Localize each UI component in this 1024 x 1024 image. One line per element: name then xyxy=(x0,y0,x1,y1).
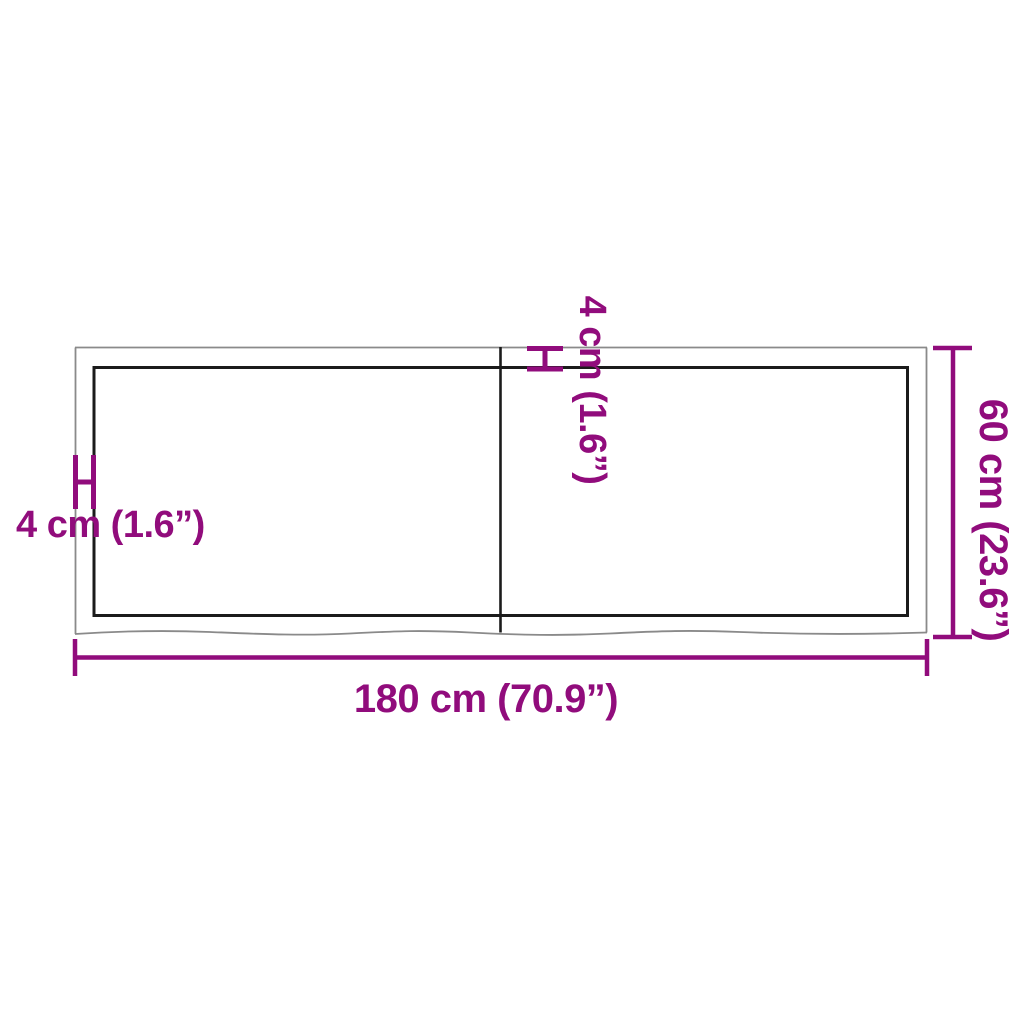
thickness-marker-top xyxy=(527,346,563,372)
thickness-marker-left xyxy=(73,455,96,509)
thickness-label-left: 4 cm (1.6”) xyxy=(16,506,205,544)
thickness-label-top: 4 cm (1.6”) xyxy=(573,296,611,485)
dimension-diagram: 180 cm (70.9”) 60 cm (23.6”) 4 cm (1.6”)… xyxy=(0,0,1024,1024)
width-dimension-line xyxy=(75,639,927,676)
depth-dimension-label: 60 cm (23.6”) xyxy=(973,399,1013,642)
depth-dimension-line xyxy=(933,348,972,637)
width-dimension-label: 180 cm (70.9”) xyxy=(354,679,618,719)
